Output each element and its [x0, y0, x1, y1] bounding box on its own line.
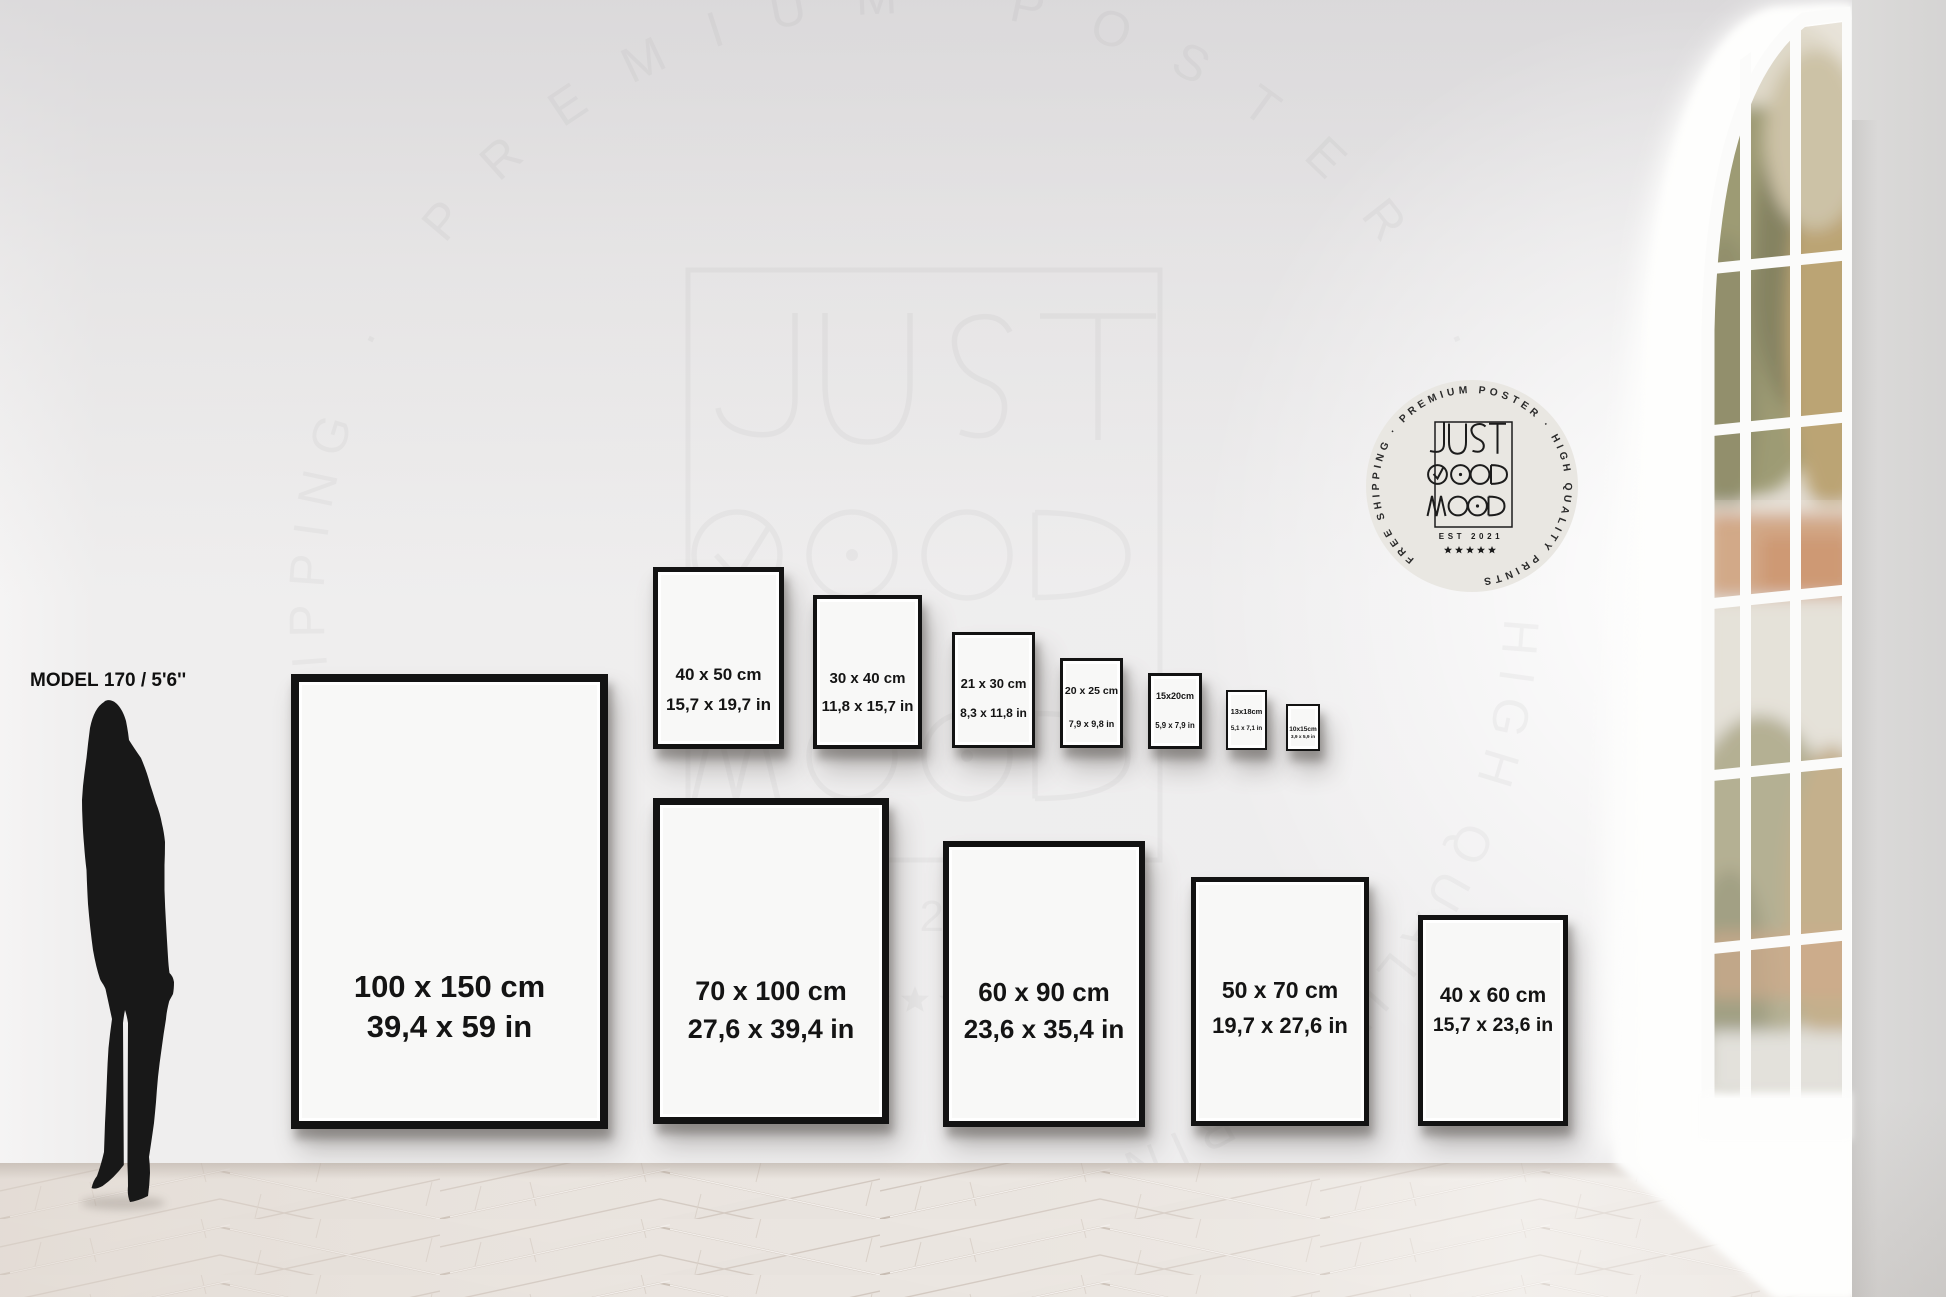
svg-text:· PREMIUM POSTER ·: · PREMIUM POSTER · — [339, 0, 1499, 379]
svg-text:EST 2021: EST 2021 — [1439, 532, 1503, 541]
